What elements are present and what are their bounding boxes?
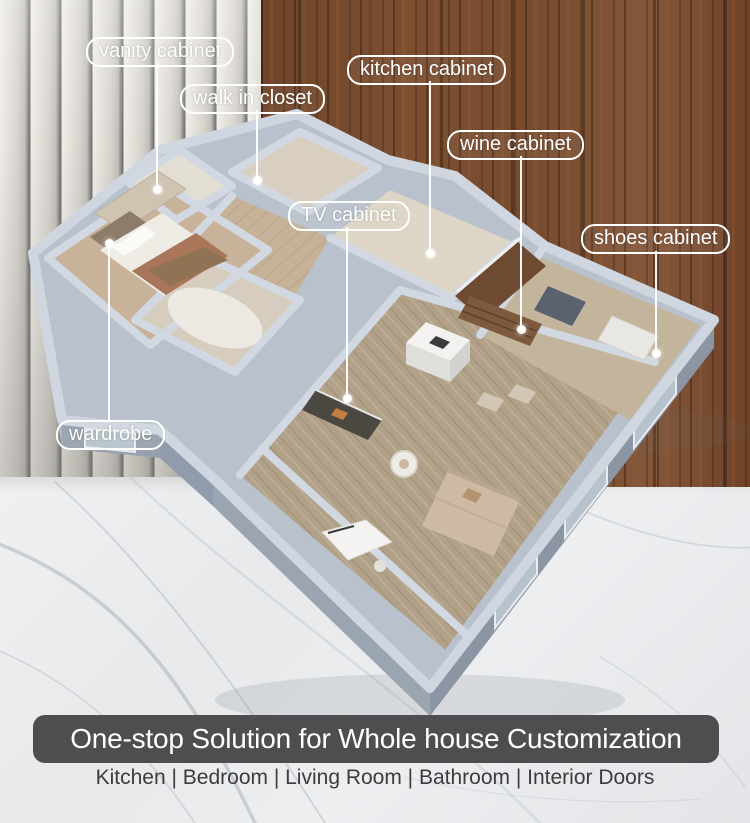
- callout-tv-cabinet: TV cabinet: [288, 201, 410, 231]
- callout-wardrobe: wardrobe: [56, 420, 165, 450]
- callout-walk-in-closet: walk in closet: [180, 84, 325, 114]
- promo-image: vanity cabinet walk in closet kitchen ca…: [0, 0, 750, 823]
- leader-dot-walk-in-closet: [253, 176, 262, 185]
- leader-dot-wine-cabinet: [517, 325, 526, 334]
- leader-dot-tv-cabinet: [343, 394, 352, 403]
- leader-dot-kitchen-cabinet: [426, 249, 435, 258]
- leader-dot-vanity-cabinet: [153, 185, 162, 194]
- leader-dot-shoes-cabinet: [652, 349, 661, 358]
- leader-line-tv-cabinet: [346, 227, 348, 395]
- leader-line-wine-cabinet: [520, 156, 522, 326]
- callout-layer: vanity cabinet walk in closet kitchen ca…: [0, 0, 750, 823]
- callout-shoes-cabinet: shoes cabinet: [581, 224, 730, 254]
- headline-banner: One-stop Solution for Whole house Custom…: [33, 715, 719, 763]
- callout-kitchen-cabinet: kitchen cabinet: [347, 55, 506, 85]
- leader-line-shoes-cabinet: [655, 251, 657, 350]
- leader-line-kitchen-cabinet: [429, 81, 431, 250]
- leader-line-vanity-cabinet: [156, 63, 158, 185]
- leader-dot-wardrobe: [105, 239, 114, 248]
- callout-wine-cabinet: wine cabinet: [447, 130, 584, 160]
- leader-line-walk-in-closet: [256, 110, 258, 177]
- headline-title: One-stop Solution for Whole house Custom…: [70, 723, 682, 755]
- leader-line-wardrobe: [108, 246, 110, 420]
- category-caption: Kitchen | Bedroom | Living Room | Bathro…: [0, 766, 750, 790]
- callout-vanity-cabinet: vanity cabinet: [86, 37, 234, 67]
